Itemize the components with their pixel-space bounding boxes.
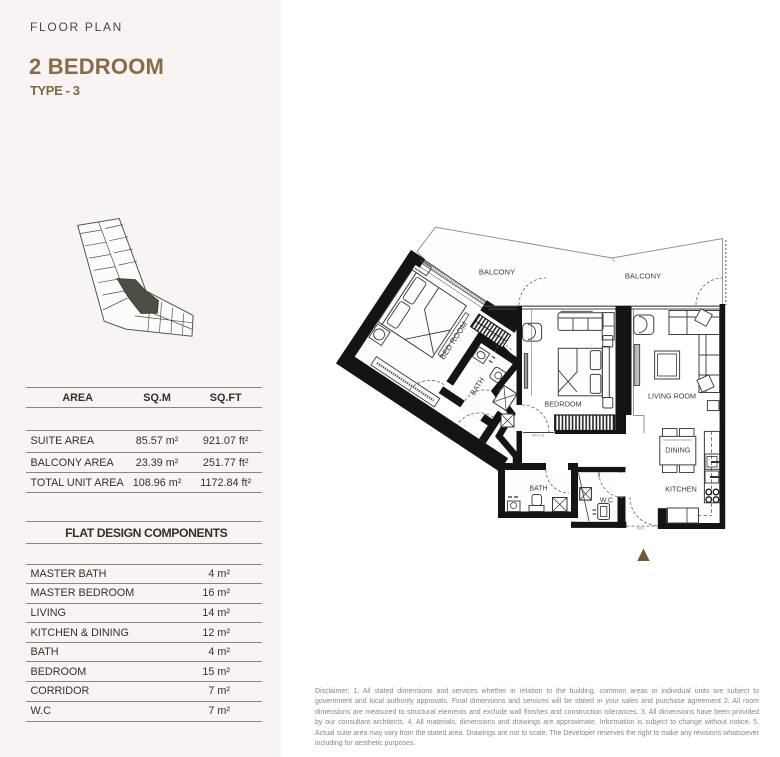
svg-text:LIVING ROOM: LIVING ROOM (648, 392, 696, 401)
svg-text:W.C: W.C (600, 498, 613, 505)
svg-text:DINING: DINING (665, 446, 691, 455)
svg-text:BATH: BATH (529, 486, 547, 493)
svg-text:BALCONY: BALCONY (479, 268, 515, 277)
svg-text:BALCONY: BALCONY (625, 272, 661, 281)
svg-text:GRILL: GRILL (636, 527, 645, 531)
svg-text:KITCHEN: KITCHEN (665, 485, 697, 494)
svg-text:BEDROOM: BEDROOM (544, 400, 581, 409)
svg-text:900 CLR: 900 CLR (532, 434, 545, 438)
